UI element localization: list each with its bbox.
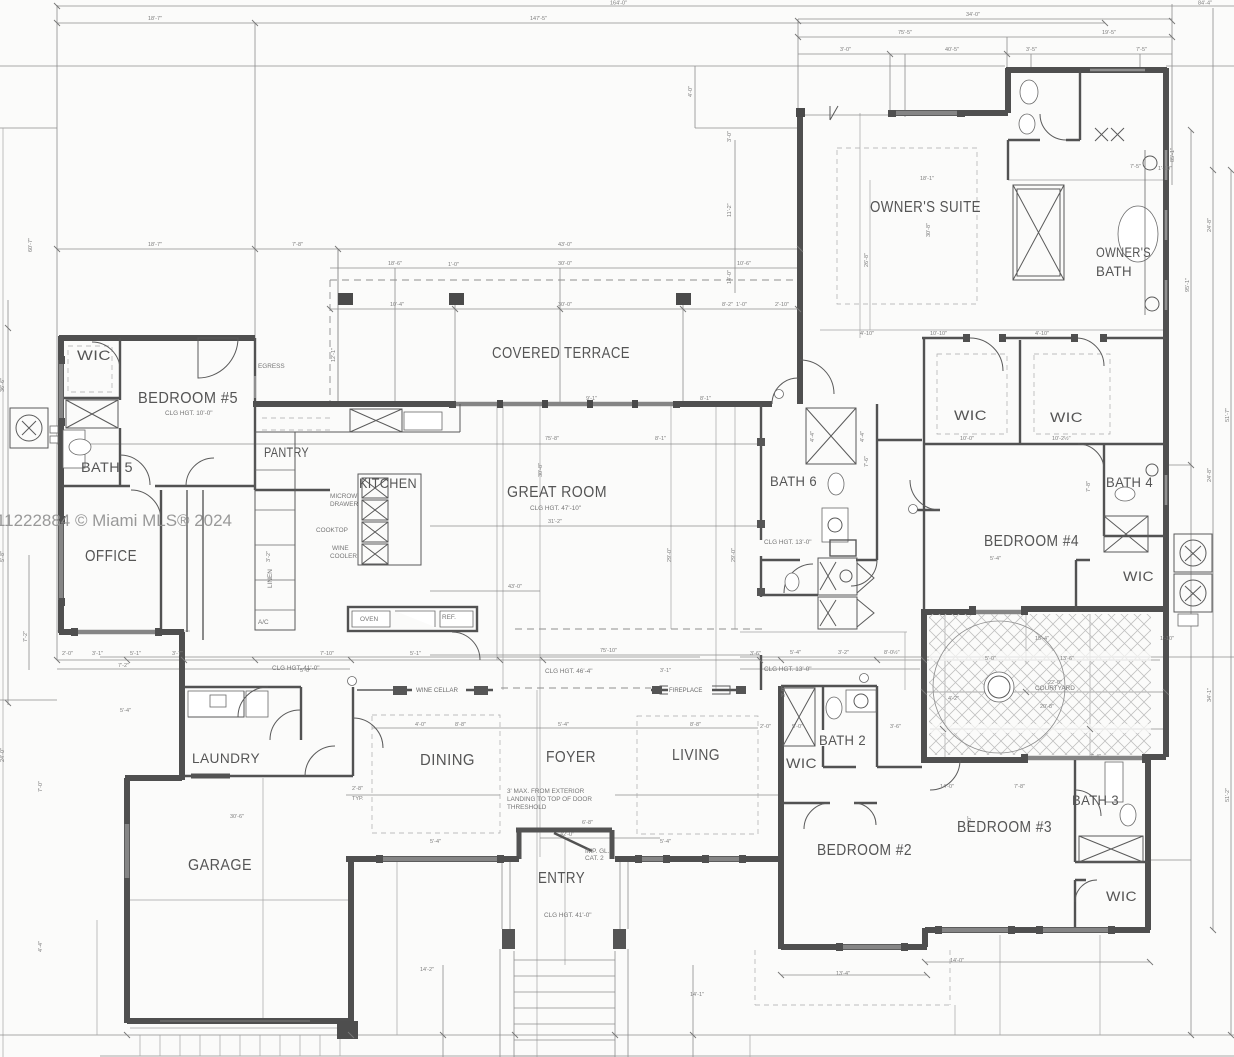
svg-text:9'-0": 9'-0" bbox=[967, 816, 973, 827]
svg-text:9'-1": 9'-1" bbox=[586, 396, 597, 402]
svg-text:3'-7": 3'-7" bbox=[172, 651, 183, 657]
svg-text:7'-5": 7'-5" bbox=[1136, 47, 1147, 53]
svg-text:4'-10": 4'-10" bbox=[1035, 331, 1049, 337]
svg-text:2'-10": 2'-10" bbox=[775, 302, 789, 308]
svg-text:CLG HGT. 10'-0": CLG HGT. 10'-0" bbox=[165, 410, 213, 417]
svg-text:CLG HGT. 13'-0": CLG HGT. 13'-0" bbox=[764, 666, 812, 673]
svg-text:14'-0": 14'-0" bbox=[727, 270, 733, 284]
svg-text:12'-1": 12'-1" bbox=[331, 348, 337, 362]
svg-text:8'-8": 8'-8" bbox=[690, 722, 701, 728]
svg-text:GREAT ROOM: GREAT ROOM bbox=[507, 484, 607, 501]
svg-text:4'-4": 4'-4" bbox=[860, 431, 866, 442]
svg-text:10'-6": 10'-6" bbox=[737, 261, 751, 267]
svg-text:8'-8": 8'-8" bbox=[455, 722, 466, 728]
svg-text:TYP.: TYP. bbox=[352, 796, 364, 802]
svg-text:1'-10": 1'-10" bbox=[1158, 166, 1172, 172]
svg-text:WIC: WIC bbox=[77, 347, 111, 363]
svg-text:7'-8": 7'-8" bbox=[1014, 784, 1025, 790]
svg-text:BATH 2: BATH 2 bbox=[819, 732, 866, 748]
svg-text:5'-4": 5'-4" bbox=[120, 708, 131, 714]
svg-text:A/C: A/C bbox=[258, 619, 269, 626]
svg-text:7'-8": 7'-8" bbox=[1086, 481, 1092, 492]
svg-text:MICROW: MICROW bbox=[330, 493, 358, 500]
svg-text:10'-0": 10'-0" bbox=[960, 436, 974, 442]
svg-text:BATH 4: BATH 4 bbox=[1106, 474, 1153, 490]
svg-text:22'-0": 22'-0" bbox=[1048, 680, 1062, 686]
svg-text:4'-0": 4'-0" bbox=[688, 86, 694, 97]
svg-text:10'-2½": 10'-2½" bbox=[1052, 435, 1071, 442]
svg-text:30'-8": 30'-8" bbox=[538, 463, 544, 477]
svg-text:WIC: WIC bbox=[1106, 888, 1137, 904]
svg-text:7'-8": 7'-8" bbox=[292, 242, 303, 248]
svg-text:2'-0": 2'-0" bbox=[62, 651, 73, 657]
svg-text:7'-2": 7'-2" bbox=[23, 631, 29, 642]
svg-text:40'-5": 40'-5" bbox=[945, 47, 959, 53]
svg-text:OFFICE: OFFICE bbox=[85, 548, 137, 565]
svg-text:5'-0": 5'-0" bbox=[300, 668, 311, 674]
svg-text:19'-5": 19'-5" bbox=[1102, 30, 1116, 36]
svg-text:WIC: WIC bbox=[1050, 409, 1083, 425]
svg-text:LINEN: LINEN bbox=[267, 569, 274, 588]
svg-text:42'-0": 42'-0" bbox=[560, 832, 574, 838]
svg-text:11'-2": 11'-2" bbox=[727, 203, 733, 217]
svg-text:7'-0": 7'-0" bbox=[38, 781, 44, 792]
svg-text:3'-0": 3'-0" bbox=[840, 47, 851, 53]
svg-text:13'-4": 13'-4" bbox=[836, 971, 850, 977]
svg-text:85'-1": 85'-1" bbox=[1170, 148, 1176, 162]
svg-text:34'-0": 34'-0" bbox=[966, 12, 980, 18]
svg-text:6'-8": 6'-8" bbox=[582, 820, 593, 826]
svg-text:LAUNDRY: LAUNDRY bbox=[192, 750, 260, 766]
svg-text:COVERED TERRACE: COVERED TERRACE bbox=[492, 345, 630, 362]
svg-text:7'-4": 7'-4" bbox=[1090, 754, 1101, 760]
svg-text:WIC: WIC bbox=[1123, 568, 1154, 584]
svg-text:COOKTOP: COOKTOP bbox=[316, 527, 348, 534]
svg-text:CAT. 2: CAT. 2 bbox=[585, 855, 604, 862]
svg-text:5'-1": 5'-1" bbox=[410, 651, 421, 657]
svg-text:5'-1": 5'-1" bbox=[130, 651, 141, 657]
svg-text:LANDING TO TOP OF DOOR: LANDING TO TOP OF DOOR bbox=[507, 796, 592, 803]
svg-text:OWNER'S SUITE: OWNER'S SUITE bbox=[870, 199, 981, 216]
svg-text:4'-2": 4'-2" bbox=[948, 696, 959, 702]
svg-text:29'-0": 29'-0" bbox=[667, 548, 673, 562]
svg-text:18'-6": 18'-6" bbox=[388, 261, 402, 267]
svg-text:CLG HGT. 47'-10": CLG HGT. 47'-10" bbox=[530, 505, 581, 512]
svg-text:30'-8": 30'-8" bbox=[926, 223, 932, 237]
svg-text:REF.: REF. bbox=[442, 614, 456, 621]
svg-text:OWNER'S: OWNER'S bbox=[1096, 244, 1151, 260]
svg-text:3'-2": 3'-2" bbox=[838, 650, 849, 656]
svg-text:5'-0": 5'-0" bbox=[985, 656, 996, 662]
svg-text:26'-8": 26'-8" bbox=[864, 253, 870, 267]
svg-text:15'-4": 15'-4" bbox=[1035, 636, 1049, 642]
svg-text:COOLER: COOLER bbox=[330, 553, 357, 560]
svg-text:11222884 © Miami MLS® 2024: 11222884 © Miami MLS® 2024 bbox=[0, 512, 232, 530]
svg-text:BATH 6: BATH 6 bbox=[770, 473, 817, 489]
svg-text:COURTYARD: COURTYARD bbox=[1035, 685, 1075, 692]
svg-text:3'-1": 3'-1" bbox=[660, 668, 671, 674]
svg-text:DRAWER: DRAWER bbox=[330, 501, 359, 508]
svg-text:KITCHEN: KITCHEN bbox=[359, 475, 417, 491]
svg-text:24'-8": 24'-8" bbox=[1207, 218, 1213, 232]
svg-text:BATH 5: BATH 5 bbox=[81, 459, 133, 475]
svg-text:164'-0": 164'-0" bbox=[610, 1, 627, 7]
svg-text:14'-2": 14'-2" bbox=[420, 967, 434, 973]
svg-text:2'-8": 2'-8" bbox=[352, 786, 363, 792]
svg-text:1'-0": 1'-0" bbox=[736, 302, 747, 308]
svg-text:8'-0½": 8'-0½" bbox=[884, 649, 900, 656]
svg-text:BEDROOM #4: BEDROOM #4 bbox=[984, 533, 1079, 550]
svg-text:14'-0": 14'-0" bbox=[940, 784, 954, 790]
svg-text:30'-0": 30'-0" bbox=[558, 261, 572, 267]
svg-text:2'-0": 2'-0" bbox=[760, 724, 771, 730]
svg-text:CLG HGT. 46'-4": CLG HGT. 46'-4" bbox=[545, 668, 593, 675]
svg-text:OVEN: OVEN bbox=[360, 616, 378, 623]
svg-text:29'-0": 29'-0" bbox=[731, 548, 737, 562]
svg-text:3'-6": 3'-6" bbox=[750, 651, 761, 657]
svg-text:5'-0": 5'-0" bbox=[792, 724, 803, 730]
svg-text:7'-6": 7'-6" bbox=[864, 456, 870, 467]
svg-text:14'-1": 14'-1" bbox=[690, 992, 704, 998]
svg-text:34'-1": 34'-1" bbox=[1207, 688, 1213, 702]
svg-text:WIC: WIC bbox=[786, 755, 817, 771]
svg-text:75'-5": 75'-5" bbox=[898, 30, 912, 36]
svg-text:3'-1": 3'-1" bbox=[92, 651, 103, 657]
svg-text:FIREPLACE: FIREPLACE bbox=[669, 688, 702, 694]
svg-text:EGRESS: EGRESS bbox=[258, 363, 285, 370]
svg-text:51'-2": 51'-2" bbox=[1225, 788, 1231, 802]
svg-text:5'-4": 5'-4" bbox=[790, 650, 801, 656]
svg-text:LIVING: LIVING bbox=[672, 747, 720, 764]
svg-text:8'-2": 8'-2" bbox=[722, 302, 733, 308]
svg-text:BATH: BATH bbox=[1096, 263, 1132, 279]
svg-text:24'-8": 24'-8" bbox=[1207, 468, 1213, 482]
svg-text:3'-5": 3'-5" bbox=[1026, 47, 1037, 53]
svg-text:DINING: DINING bbox=[420, 752, 475, 769]
svg-text:5'-8": 5'-8" bbox=[0, 551, 6, 562]
svg-text:14'-0": 14'-0" bbox=[950, 958, 964, 964]
svg-text:10'-10": 10'-10" bbox=[930, 331, 947, 337]
svg-text:WIC: WIC bbox=[954, 407, 987, 423]
svg-text:95'-1": 95'-1" bbox=[1185, 278, 1191, 292]
svg-text:18'-1": 18'-1" bbox=[920, 176, 934, 182]
svg-text:7'-2": 7'-2" bbox=[118, 663, 129, 669]
svg-text:147'-5": 147'-5" bbox=[530, 16, 547, 22]
svg-text:43'-0": 43'-0" bbox=[558, 242, 572, 248]
svg-text:3'-0": 3'-0" bbox=[781, 686, 787, 697]
svg-text:FOYER: FOYER bbox=[546, 749, 596, 766]
svg-text:7'-5": 7'-5" bbox=[1130, 164, 1141, 170]
svg-text:BEDROOM #5: BEDROOM #5 bbox=[138, 390, 238, 407]
svg-text:3' MAX. FROM EXTERIOR: 3' MAX. FROM EXTERIOR bbox=[507, 788, 585, 795]
svg-text:BATH 3: BATH 3 bbox=[1072, 792, 1119, 808]
svg-text:GARAGE: GARAGE bbox=[188, 857, 252, 874]
svg-text:3'-6": 3'-6" bbox=[890, 724, 901, 730]
svg-text:84'-4": 84'-4" bbox=[1198, 1, 1212, 7]
svg-text:18'-7": 18'-7" bbox=[148, 242, 162, 248]
svg-text:51'-7": 51'-7" bbox=[1225, 408, 1231, 422]
svg-text:43'-0": 43'-0" bbox=[508, 584, 522, 590]
svg-text:60'-7": 60'-7" bbox=[28, 238, 34, 252]
svg-text:WINE: WINE bbox=[332, 545, 349, 552]
svg-text:THRESHOLD: THRESHOLD bbox=[507, 804, 547, 811]
svg-text:CLG HGT. 41'-0": CLG HGT. 41'-0" bbox=[544, 912, 592, 919]
svg-text:7'-10": 7'-10" bbox=[320, 651, 334, 657]
svg-text:18'-7": 18'-7" bbox=[148, 16, 162, 22]
svg-text:31'-2": 31'-2" bbox=[548, 519, 562, 525]
svg-text:1'-10": 1'-10" bbox=[1160, 636, 1174, 642]
svg-text:5'-4": 5'-4" bbox=[660, 839, 671, 845]
svg-text:4'-10": 4'-10" bbox=[860, 331, 874, 337]
svg-text:ENTRY: ENTRY bbox=[538, 870, 585, 887]
svg-text:75'-10": 75'-10" bbox=[600, 648, 617, 654]
svg-text:36'-6": 36'-6" bbox=[0, 378, 6, 392]
svg-text:30'-6": 30'-6" bbox=[230, 814, 244, 820]
svg-text:4'-4": 4'-4" bbox=[38, 941, 44, 952]
svg-text:5'-4": 5'-4" bbox=[990, 556, 1001, 562]
svg-text:24'-0": 24'-0" bbox=[0, 748, 6, 762]
svg-text:WINE CELLAR: WINE CELLAR bbox=[416, 687, 458, 694]
svg-text:3'-2": 3'-2" bbox=[266, 551, 272, 562]
svg-text:CLG HGT. 41'-0": CLG HGT. 41'-0" bbox=[272, 665, 320, 672]
svg-text:8'-1": 8'-1" bbox=[655, 436, 666, 442]
svg-text:IMP. GL.: IMP. GL. bbox=[585, 848, 610, 855]
svg-text:4'-0": 4'-0" bbox=[415, 722, 426, 728]
svg-text:5'-4": 5'-4" bbox=[430, 839, 441, 845]
svg-text:3'-0": 3'-0" bbox=[727, 131, 733, 142]
svg-text:BEDROOM #2: BEDROOM #2 bbox=[817, 842, 912, 859]
svg-text:4'-4": 4'-4" bbox=[810, 431, 816, 442]
svg-text:CLG HGT. 13'-0": CLG HGT. 13'-0" bbox=[764, 539, 812, 546]
svg-text:5'-4": 5'-4" bbox=[558, 722, 569, 728]
svg-text:20'-8": 20'-8" bbox=[1040, 704, 1054, 710]
svg-text:10'-4": 10'-4" bbox=[390, 302, 404, 308]
svg-text:30'-0": 30'-0" bbox=[558, 302, 572, 308]
svg-text:PANTRY: PANTRY bbox=[264, 444, 309, 460]
svg-text:8'-1": 8'-1" bbox=[700, 396, 711, 402]
svg-text:1'-0": 1'-0" bbox=[448, 262, 459, 268]
svg-text:75'-8": 75'-8" bbox=[545, 436, 559, 442]
svg-text:13'-6": 13'-6" bbox=[1060, 656, 1074, 662]
